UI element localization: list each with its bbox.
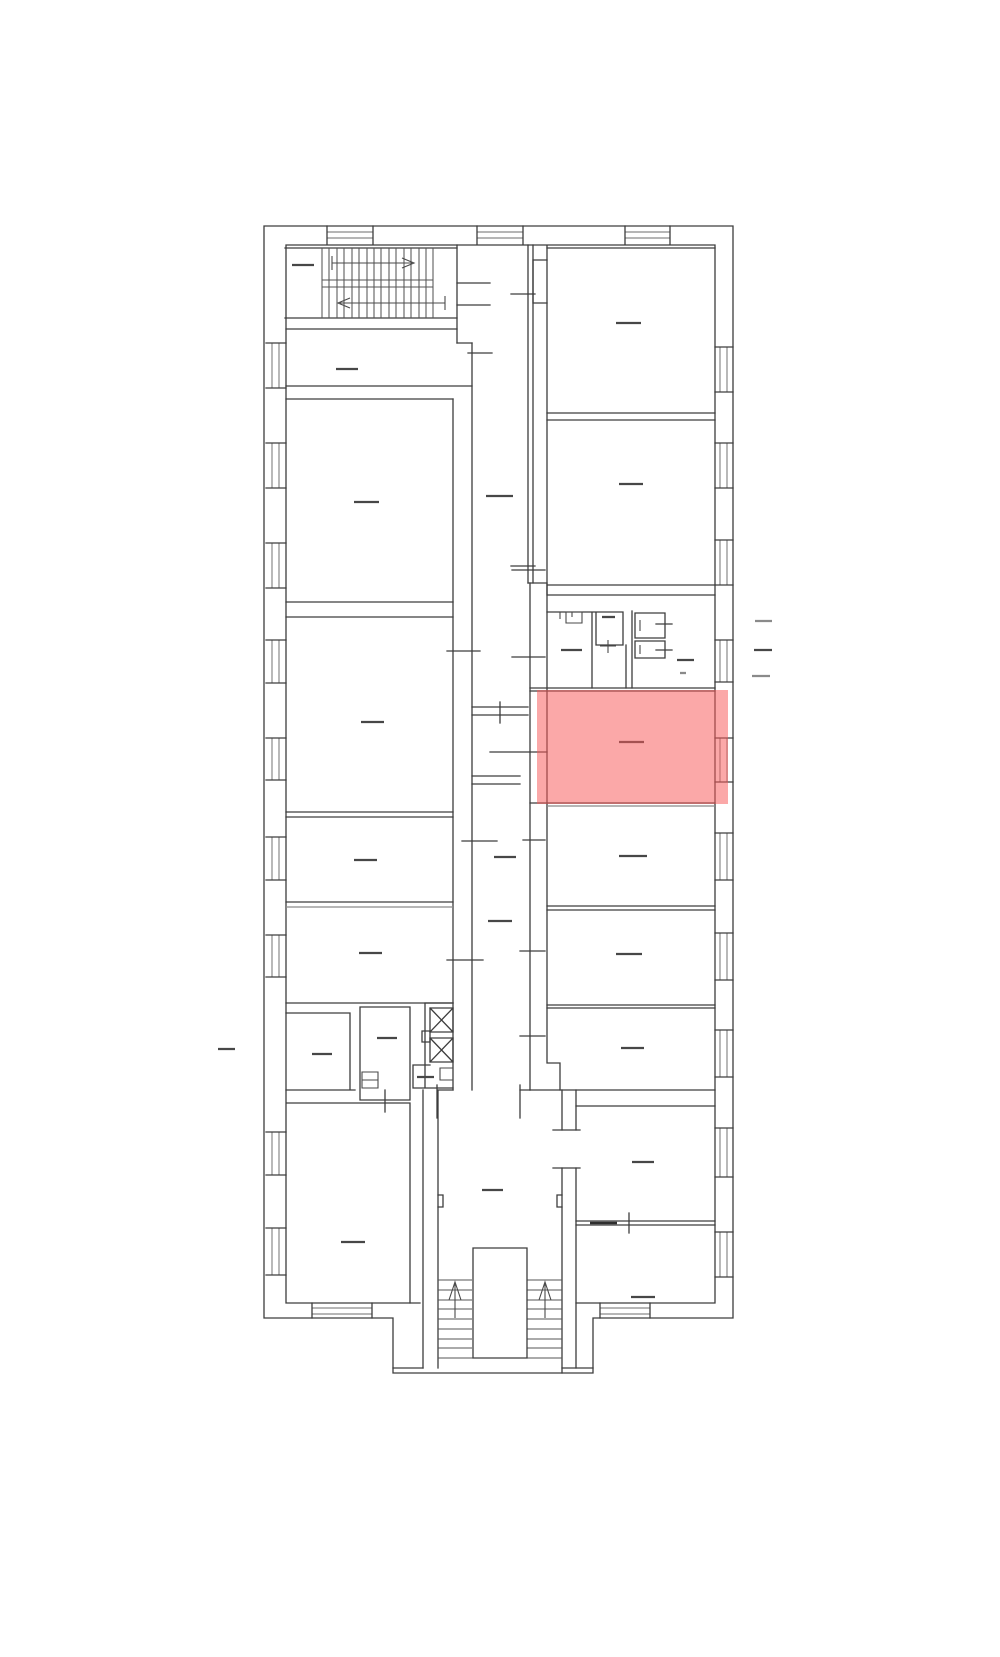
highlight-layer bbox=[537, 690, 728, 804]
highlighted-room[interactable] bbox=[537, 690, 728, 804]
plan-background bbox=[0, 0, 1000, 1657]
page bbox=[0, 0, 1000, 1657]
floor-plan bbox=[0, 0, 1000, 1657]
